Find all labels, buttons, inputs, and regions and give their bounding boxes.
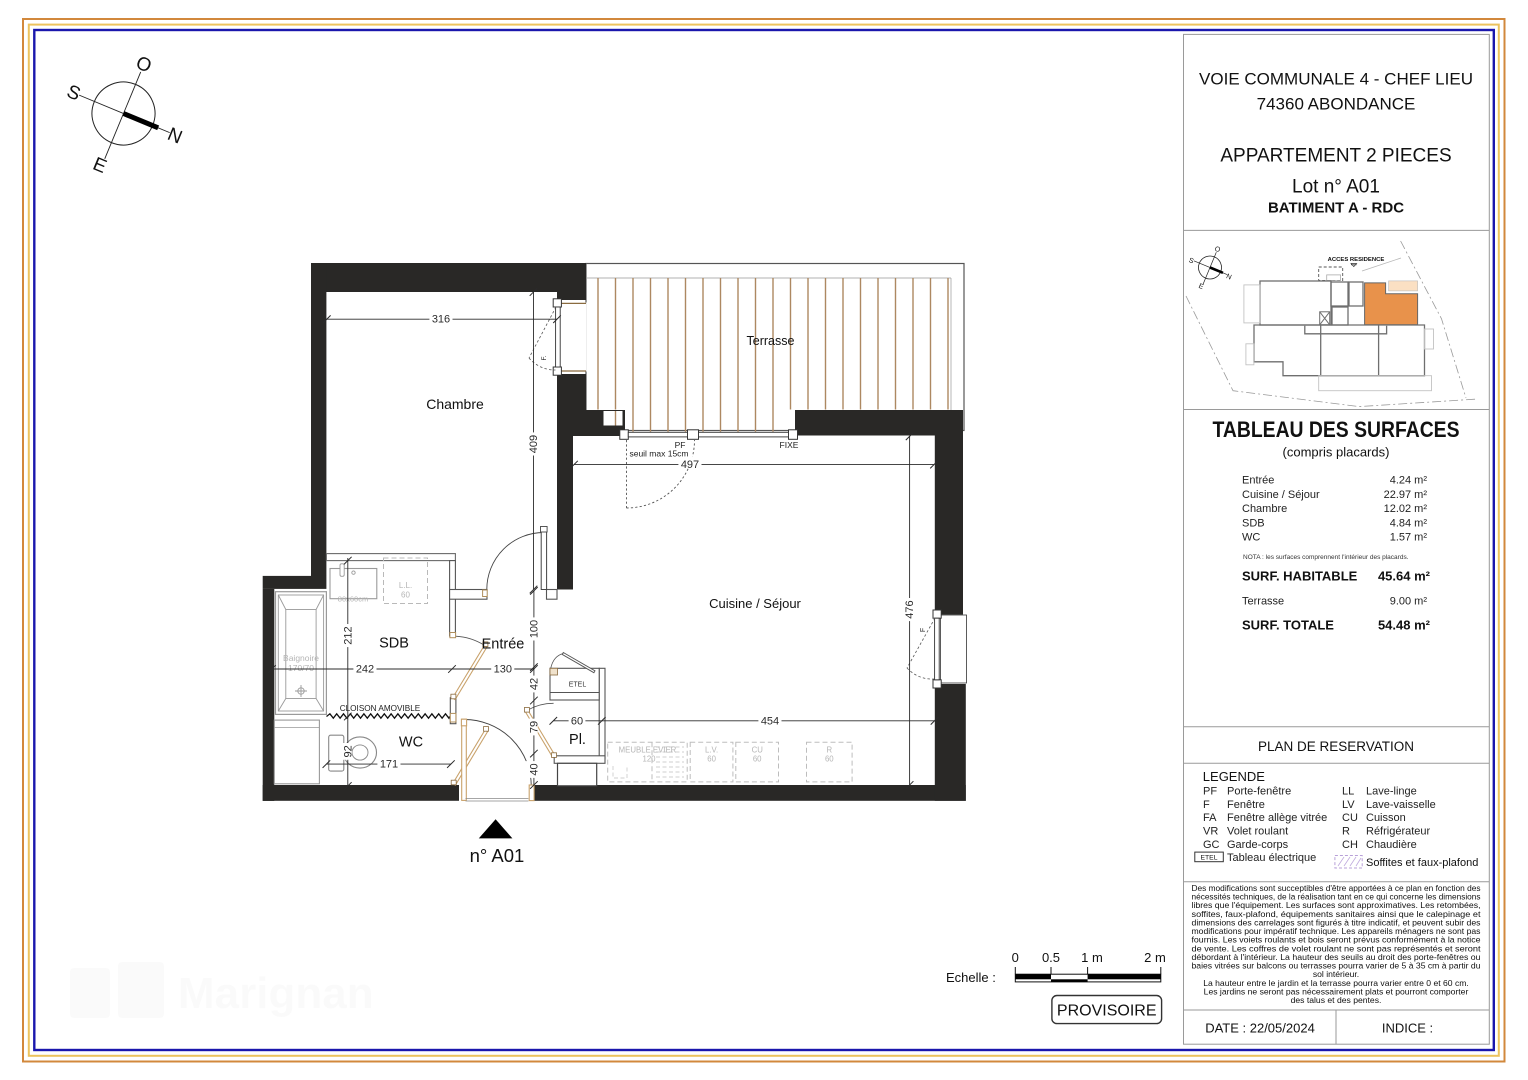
svg-text:L.L.: L.L. [399,581,412,590]
svg-text:CLOISON AMOVIBLE: CLOISON AMOVIBLE [340,704,421,713]
svg-text:ETEL: ETEL [569,682,587,689]
svg-text:VOIE COMMUNALE 4 - CHEF LIEU: VOIE COMMUNALE 4 - CHEF LIEU [1199,70,1473,89]
svg-text:Lave-vaisselle: Lave-vaisselle [1366,799,1436,811]
svg-text:Cuisine / Séjour: Cuisine / Séjour [709,596,801,611]
svg-text:LV: LV [1342,799,1355,811]
svg-text:FA: FA [1203,812,1217,824]
svg-text:Baignoire: Baignoire [283,653,319,663]
svg-text:Tableau électrique: Tableau électrique [1227,852,1316,864]
svg-text:SDB: SDB [379,636,409,652]
svg-text:Chaudière: Chaudière [1366,839,1417,851]
svg-text:Chambre: Chambre [426,396,484,412]
svg-text:Cuisine / Séjour: Cuisine / Séjour [1242,489,1320,501]
svg-text:LL: LL [1342,786,1354,798]
svg-text:BATIMENT A - RDC: BATIMENT A - RDC [1268,200,1404,217]
svg-text:MEUBLE EVIER: MEUBLE EVIER [619,746,677,755]
svg-text:Entrée: Entrée [482,637,525,653]
svg-text:WC: WC [1242,532,1260,544]
svg-text:NOTA : les surfaces comprennen: NOTA : les surfaces comprennent l'intéri… [1243,554,1409,561]
svg-text:45.64 m²: 45.64 m² [1378,569,1431,584]
svg-text:100: 100 [528,620,540,638]
svg-text:Fenêtre: Fenêtre [1227,799,1265,811]
svg-text:40: 40 [528,763,540,775]
svg-text:FIXE: FIXE [780,440,799,450]
svg-text:Fenêtre allège vitrée: Fenêtre allège vitrée [1227,812,1327,824]
svg-text:12.02 m²: 12.02 m² [1384,503,1428,515]
svg-text:ACCES RESIDENCE: ACCES RESIDENCE [1328,257,1385,263]
svg-text:F: F [920,628,927,632]
svg-text:4.84 m²: 4.84 m² [1390,517,1428,529]
svg-text:INDICE :: INDICE : [1382,1021,1433,1036]
svg-text:316: 316 [432,314,450,326]
svg-text:SURF. TOTALE: SURF. TOTALE [1242,618,1334,633]
svg-text:4.24 m²: 4.24 m² [1390,475,1428,487]
svg-text:0.5: 0.5 [1042,950,1060,965]
svg-text:Garde-corps: Garde-corps [1227,839,1289,851]
svg-text:60: 60 [753,755,762,764]
svg-text:409: 409 [528,435,540,453]
svg-text:Pl.: Pl. [569,732,586,748]
svg-text:79: 79 [528,721,540,733]
svg-text:(compris placards): (compris placards) [1283,445,1390,460]
svg-text:Réfrigérateur: Réfrigérateur [1366,826,1431,838]
svg-text:22.97 m²: 22.97 m² [1384,489,1428,501]
svg-text:F: F [1203,799,1210,811]
svg-text:1 m: 1 m [1081,950,1103,965]
svg-text:ETEL: ETEL [1201,855,1218,862]
svg-text:Cuisson: Cuisson [1366,812,1406,824]
svg-text:42: 42 [528,678,540,690]
svg-text:LEGENDE: LEGENDE [1203,769,1265,784]
svg-text:PF: PF [1203,786,1217,798]
svg-text:WC: WC [399,735,423,751]
svg-text:CU: CU [752,746,764,755]
svg-text:74360 ABONDANCE: 74360 ABONDANCE [1257,95,1416,114]
svg-text:92: 92 [342,745,354,757]
svg-text:60: 60 [401,591,410,600]
svg-text:L.V.: L.V. [705,746,718,755]
svg-text:SURF. HABITABLE: SURF. HABITABLE [1242,569,1358,584]
svg-text:APPARTEMENT 2 PIECES: APPARTEMENT 2 PIECES [1220,146,1451,167]
svg-text:VR: VR [1203,826,1218,838]
svg-text:130: 130 [494,664,512,676]
svg-text:1.57 m²: 1.57 m² [1390,532,1428,544]
svg-text:TABLEAU DES SURFACES: TABLEAU DES SURFACES [1213,417,1460,442]
svg-text:0: 0 [1012,950,1019,965]
svg-text:CU: CU [1342,812,1358,824]
svg-text:Lot n° A01: Lot n° A01 [1292,177,1380,198]
svg-text:60: 60 [825,755,834,764]
svg-text:Entrée: Entrée [1242,475,1274,487]
svg-text:PROVISOIRE: PROVISOIRE [1057,1003,1157,1020]
svg-text:120: 120 [642,755,656,764]
svg-text:PLAN DE RESERVATION: PLAN DE RESERVATION [1258,739,1414,754]
svg-text:Chambre: Chambre [1242,503,1287,515]
svg-text:Marignan: Marignan [178,969,374,1018]
svg-text:DATE : 22/05/2024: DATE : 22/05/2024 [1205,1021,1315,1036]
svg-text:Lave-linge: Lave-linge [1366,786,1417,798]
svg-text:454: 454 [761,715,779,727]
svg-text:Volet roulant: Volet roulant [1227,826,1288,838]
svg-text:54.48 m²: 54.48 m² [1378,618,1431,633]
svg-text:2 m: 2 m [1144,950,1166,965]
svg-text:171: 171 [380,759,398,771]
svg-text:476: 476 [904,600,916,618]
svg-text:R: R [826,746,832,755]
svg-text:Terrasse: Terrasse [1242,596,1284,608]
svg-text:n° A01: n° A01 [470,845,525,866]
svg-text:F.: F. [541,355,548,360]
svg-text:SDB: SDB [1242,517,1265,529]
svg-text:80x60cm: 80x60cm [338,595,368,604]
svg-text:212: 212 [342,626,354,644]
svg-text:des talus et des pentes.: des talus et des pentes. [1291,995,1382,1005]
svg-text:Echelle :: Echelle : [946,970,996,985]
svg-text:R: R [1342,826,1350,838]
svg-text:60: 60 [707,755,716,764]
svg-text:GC: GC [1203,839,1220,851]
svg-text:9.00 m²: 9.00 m² [1390,596,1428,608]
svg-text:Terrasse: Terrasse [747,334,795,348]
svg-text:Soffites et faux-plafond: Soffites et faux-plafond [1366,857,1478,869]
svg-text:170/70: 170/70 [288,663,314,673]
svg-text:242: 242 [356,664,374,676]
svg-text:CH: CH [1342,839,1358,851]
svg-text:Porte-fenêtre: Porte-fenêtre [1227,786,1291,798]
svg-text:60: 60 [571,715,583,727]
svg-text:497: 497 [681,459,699,471]
